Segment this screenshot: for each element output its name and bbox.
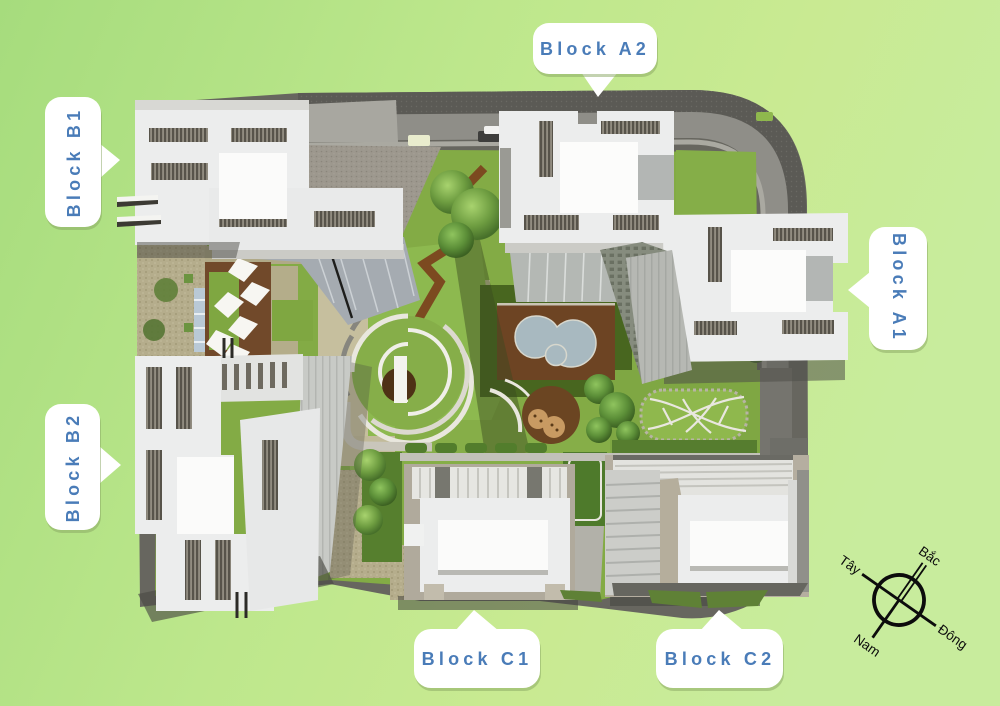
svg-text:Block C1: Block C1 [422, 649, 533, 669]
svg-text:Block C2: Block C2 [665, 649, 776, 669]
svg-text:Block B2: Block B2 [63, 412, 83, 523]
svg-text:Block B1: Block B1 [64, 107, 84, 218]
svg-text:Block A2: Block A2 [540, 39, 650, 59]
svg-text:Block A1: Block A1 [889, 233, 909, 343]
